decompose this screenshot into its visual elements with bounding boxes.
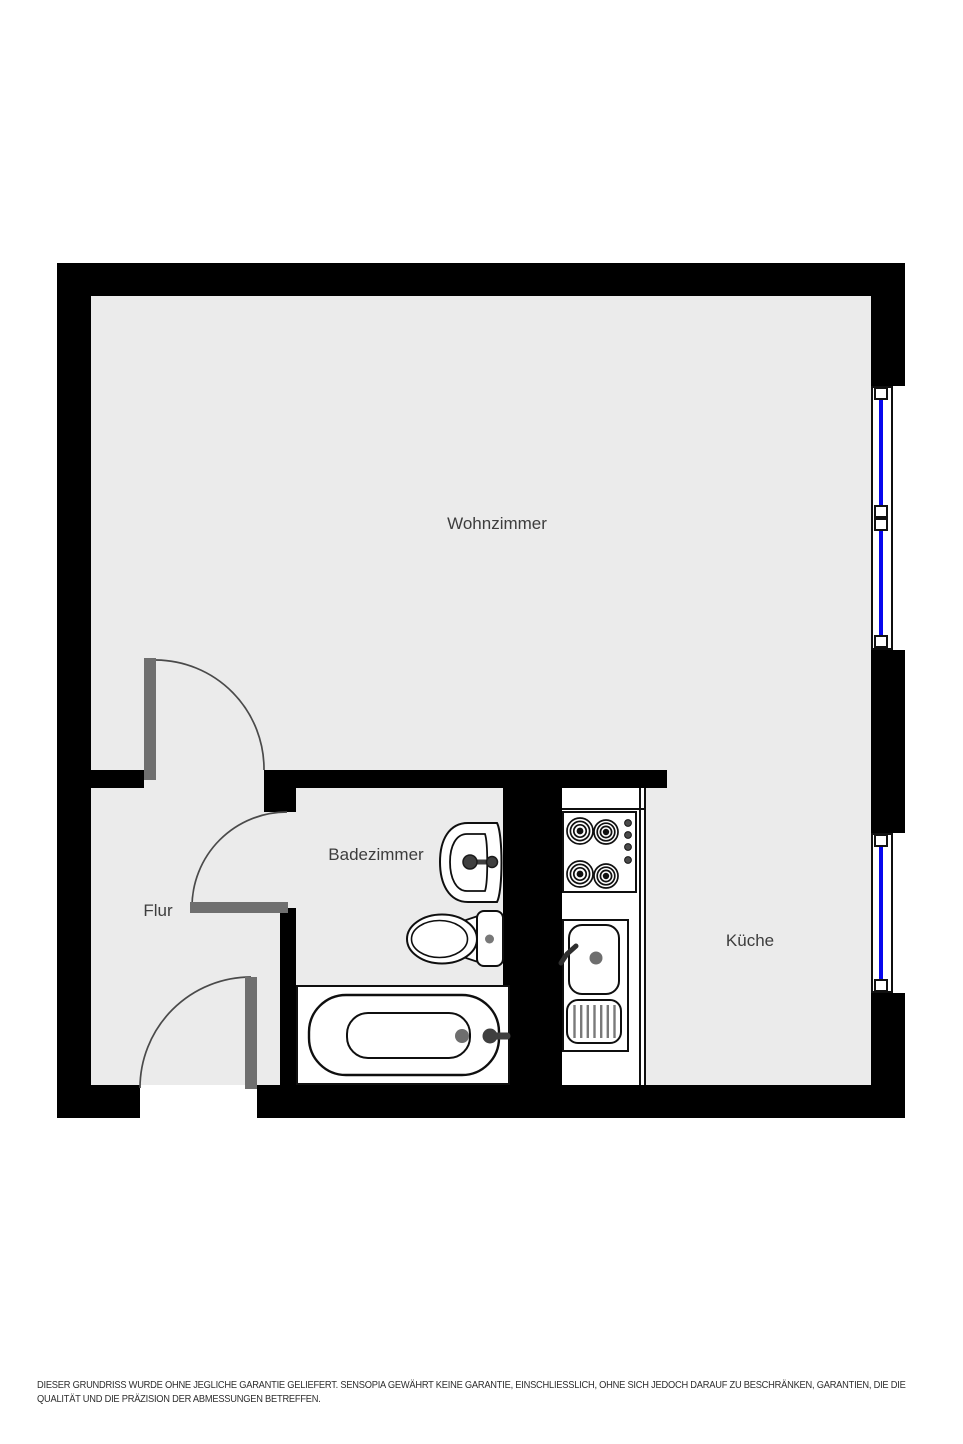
wall-left — [57, 263, 91, 1118]
room-label-kueche: Küche — [726, 931, 774, 951]
utility-shaft-wall — [503, 788, 562, 1085]
kitchen-counter-edge-line-2 — [644, 788, 646, 1085]
window-lower-sash-top-icon — [874, 834, 888, 847]
kitchen-counter — [562, 788, 646, 1085]
wall-right-middle — [871, 650, 905, 833]
interior-wall-hall-left — [91, 770, 144, 788]
room-label-wohnzimmer: Wohnzimmer — [447, 514, 547, 534]
disclaimer-text: DIESER GRUNDRISS WURDE OHNE JEGLICHE GAR… — [37, 1379, 911, 1406]
disclaimer-line-2: QUALITÄT UND DIE PRÄZISION DER ABMESSUNG… — [37, 1393, 911, 1407]
window-upper-sash-top-icon — [874, 387, 888, 400]
window-lower-sash-bottom-icon — [874, 979, 888, 992]
bathtub-enclosure — [296, 985, 510, 1085]
window-upper-sash-mid1-icon — [874, 505, 888, 518]
wall-bottom-main — [257, 1085, 905, 1118]
apartment-floor — [91, 296, 871, 1085]
disclaimer-line-1: DIESER GRUNDRISS WURDE OHNE JEGLICHE GAR… — [37, 1379, 911, 1393]
window-upper-sash-mid2-icon — [874, 518, 888, 531]
floorplan-page: { "floorplan": { "title": "Grundriss", "… — [0, 0, 963, 1444]
interior-wall-livingroom — [264, 770, 667, 788]
wall-right-lower — [871, 993, 905, 1118]
window-lower-glass-icon — [879, 845, 883, 981]
wall-right-upper — [871, 263, 905, 386]
bathroom-door-jamb — [264, 788, 296, 812]
floorplan-canvas: Wohnzimmer Badezimmer Flur Küche — [0, 0, 963, 1444]
wall-top — [57, 263, 905, 296]
kitchen-counter-edge-line-1 — [639, 788, 641, 1085]
bathroom-hall-wall — [280, 908, 296, 1085]
window-lower — [871, 833, 893, 993]
room-label-flur: Flur — [143, 901, 172, 921]
window-upper — [871, 386, 893, 650]
wall-bottom-left — [57, 1085, 140, 1118]
window-upper-sash-bottom-icon — [874, 635, 888, 648]
room-label-badezimmer: Badezimmer — [328, 845, 423, 865]
